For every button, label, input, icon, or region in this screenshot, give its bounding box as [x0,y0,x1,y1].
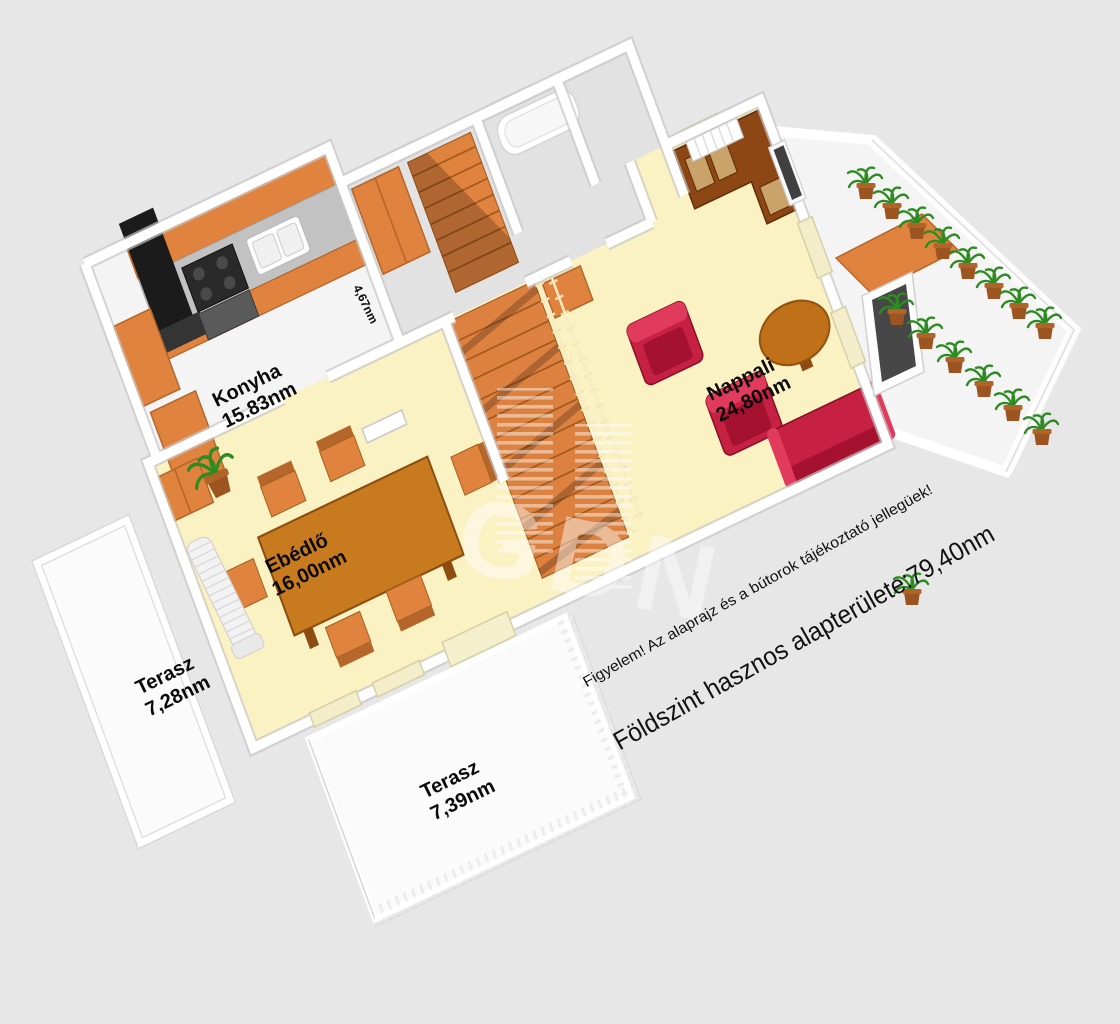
floorplan-render: GDN Konyha 15.83nm Nappali 24,80nm Ebédl… [0,0,1120,1024]
floorplan-image: GDN Konyha 15.83nm Nappali 24,80nm Ebédl… [0,0,1120,1024]
